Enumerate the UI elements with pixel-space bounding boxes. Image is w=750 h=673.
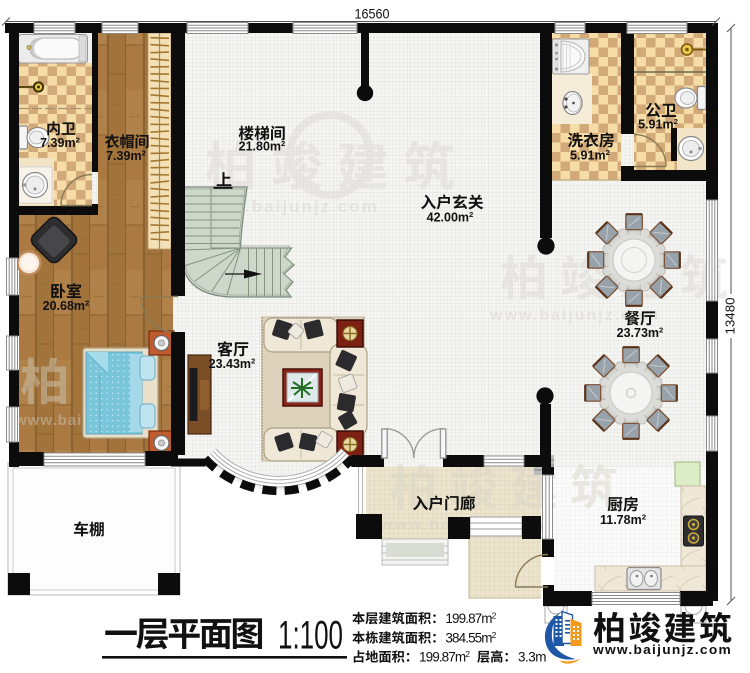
svg-text:16560: 16560 xyxy=(355,7,390,22)
svg-text:21.80m2: 21.80m2 xyxy=(239,139,286,154)
svg-text:42.00m2: 42.00m2 xyxy=(427,210,474,225)
svg-text:384.55m2: 384.55m2 xyxy=(445,630,496,646)
svg-text:7.39m2: 7.39m2 xyxy=(40,135,80,150)
svg-text:3.3m: 3.3m xyxy=(518,650,546,665)
svg-text:11.78m2: 11.78m2 xyxy=(600,512,646,527)
svg-text:5.91m2: 5.91m2 xyxy=(638,117,678,132)
svg-text:199.87m2: 199.87m2 xyxy=(419,649,470,665)
svg-text:13480: 13480 xyxy=(724,297,738,334)
svg-text:199.87m2: 199.87m2 xyxy=(445,611,496,627)
svg-text:7.39m2: 7.39m2 xyxy=(106,148,146,163)
svg-text:1:100: 1:100 xyxy=(278,614,343,658)
svg-text:20.68m2: 20.68m2 xyxy=(43,298,90,313)
svg-text:www.baijunjz.com: www.baijunjz.com xyxy=(592,642,732,657)
svg-text:23.43m2: 23.43m2 xyxy=(209,356,256,371)
svg-text:23.73m2: 23.73m2 xyxy=(617,325,664,340)
svg-text:5.91m2: 5.91m2 xyxy=(570,148,610,163)
